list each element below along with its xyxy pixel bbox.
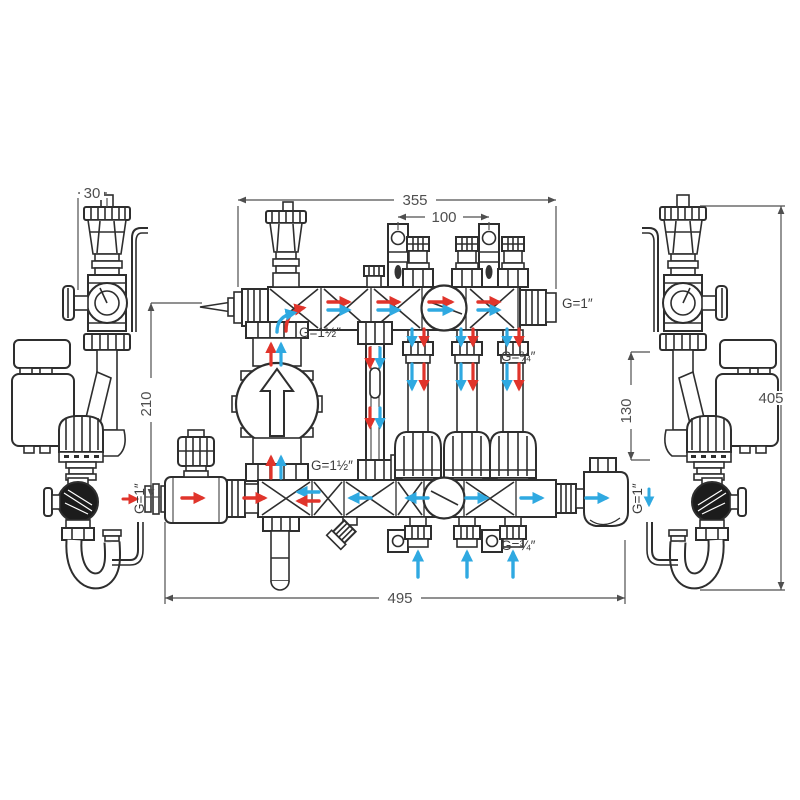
sensor-probe xyxy=(200,302,232,312)
dim-100: 100 xyxy=(431,209,456,226)
manifold-technical-drawing: 30 355 100 210 130 405 495 G=1½″ G=1½″ G… xyxy=(0,0,800,800)
dim-130: 130 xyxy=(618,398,635,423)
flow-meter xyxy=(452,237,482,287)
bypass-tube xyxy=(358,322,392,480)
actuator-cap xyxy=(444,432,490,483)
dim-30: 30 xyxy=(84,185,101,202)
thermostatic-valve-body xyxy=(165,477,227,523)
drain-valve xyxy=(327,517,357,549)
end-cap xyxy=(546,293,556,322)
label-lower-outlets: G=¾″ xyxy=(501,538,536,553)
loop-pipe xyxy=(498,330,528,433)
dim-495: 495 xyxy=(387,590,412,607)
label-pump-bottom: G=1½″ xyxy=(311,458,353,473)
thermometer-well xyxy=(263,517,299,590)
circulation-pump-group xyxy=(232,322,322,481)
label-upper-outlets: G=¾″ xyxy=(501,349,536,364)
end-valve-group xyxy=(556,458,628,526)
return-up-arrows xyxy=(418,553,513,577)
actuator-cap xyxy=(395,432,441,483)
lower-manifold xyxy=(145,430,628,590)
label-pump-top: G=1½″ xyxy=(299,325,341,340)
drawing-canvas: 30 355 100 210 130 405 495 G=1½″ G=1½″ G… xyxy=(0,0,800,800)
label-manifold-end: G=1″ xyxy=(562,296,593,311)
flow-meter xyxy=(498,237,528,287)
loop-pipes xyxy=(403,330,528,433)
dim-210: 210 xyxy=(138,391,155,416)
return-stub xyxy=(454,517,480,547)
label-left-inlet: G=1″ xyxy=(132,483,147,514)
left-connector xyxy=(234,292,242,323)
dim-405: 405 xyxy=(758,390,783,407)
left-side-view xyxy=(12,195,148,581)
air-vent xyxy=(266,202,306,287)
loop-pipe xyxy=(403,330,433,433)
inlet-valve-group xyxy=(145,430,258,523)
right-side-view xyxy=(642,195,778,581)
dim-355: 355 xyxy=(402,192,427,209)
actuator-cap xyxy=(490,432,536,483)
manual-vent-cap xyxy=(364,266,384,287)
return-stub xyxy=(405,517,431,547)
label-right-outlet: G=1″ xyxy=(630,483,645,514)
loop-pipe xyxy=(452,330,482,433)
